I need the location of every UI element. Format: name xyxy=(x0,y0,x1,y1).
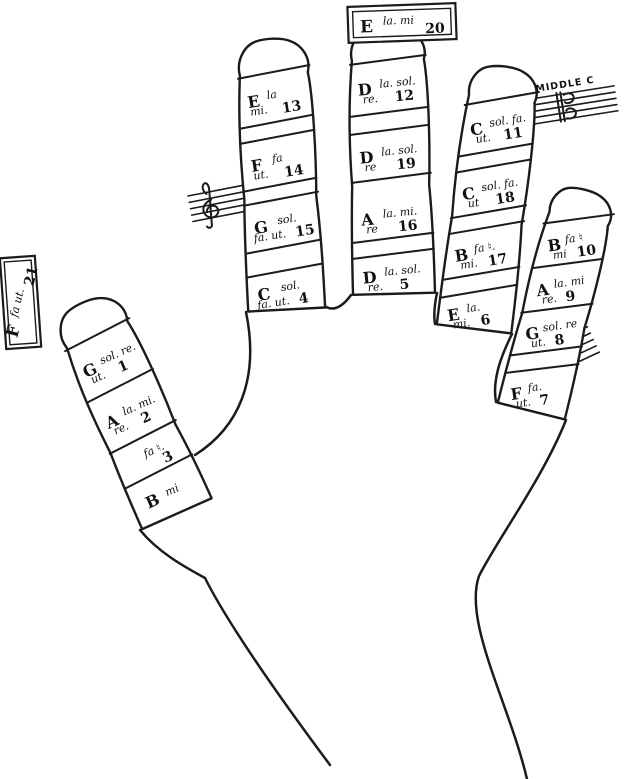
joint-number: 20 xyxy=(425,21,445,38)
thumb: G sol. re. ut. 1 A la. mi. re. 2 fa ♮. 3… xyxy=(48,287,211,529)
note-syllables: re xyxy=(364,160,377,174)
middle-c-label: MIDDLE C xyxy=(535,75,596,95)
joint-number: 17 xyxy=(487,251,509,270)
treble-staff xyxy=(186,176,249,230)
joint-number: 11 xyxy=(502,125,524,144)
note-syllables: ut. xyxy=(252,168,269,183)
middle-finger: D la. sol. re. 12 D la. sol. re 19 A la.… xyxy=(346,25,435,297)
note-syllables: mi. xyxy=(249,103,268,119)
note-syllables: re. xyxy=(362,92,378,106)
note-syllables: mi. xyxy=(459,256,478,272)
index-middle-web xyxy=(326,295,351,309)
note-syllables: mi xyxy=(552,247,568,262)
hand-diagram: G sol. re. ut. 1 A la. mi. re. 2 fa ♮. 3… xyxy=(0,0,640,779)
thumb-index-web xyxy=(195,312,250,455)
joint-number: 10 xyxy=(576,242,598,261)
joint-number: 18 xyxy=(494,189,516,208)
joint-number: 14 xyxy=(283,162,305,181)
joint-number: 5 xyxy=(399,276,410,293)
treble-clef-icon xyxy=(198,182,221,229)
note-syllables: ut. xyxy=(530,335,547,350)
note-syllables: mi. xyxy=(452,316,471,332)
joint-number: 19 xyxy=(396,155,417,173)
joint-number: 12 xyxy=(394,87,415,105)
guidonian-hand-svg: G sol. re. ut. 1 A la. mi. re. 2 fa ♮. 3… xyxy=(0,0,640,779)
note-syllables: ut. xyxy=(475,131,492,146)
joint-number: 15 xyxy=(294,222,316,241)
joint-number: 16 xyxy=(397,217,418,235)
note-syllables: la. mi xyxy=(383,14,414,28)
note-syllables: la xyxy=(266,88,278,102)
note-syllables: fa xyxy=(270,151,284,166)
note-syllables: re. xyxy=(541,292,558,307)
palm-left-edge xyxy=(140,530,330,765)
note-syllables: ut. xyxy=(515,396,532,411)
hand-outline xyxy=(140,293,566,779)
label-box-20: E la. mi 20 xyxy=(347,3,456,43)
joint-number: 21 xyxy=(21,265,41,288)
label-box-21: F fa ut. 21 xyxy=(0,256,42,349)
note-syllables: re. xyxy=(367,280,383,294)
index-finger: E la mi. 13 F fa ut. 14 G sol. fa. ut. 1… xyxy=(234,37,325,315)
palm-right-edge xyxy=(476,420,566,779)
joint-number: 13 xyxy=(281,98,303,117)
note-letter: E xyxy=(360,17,374,37)
note-syllables: re xyxy=(366,222,379,236)
